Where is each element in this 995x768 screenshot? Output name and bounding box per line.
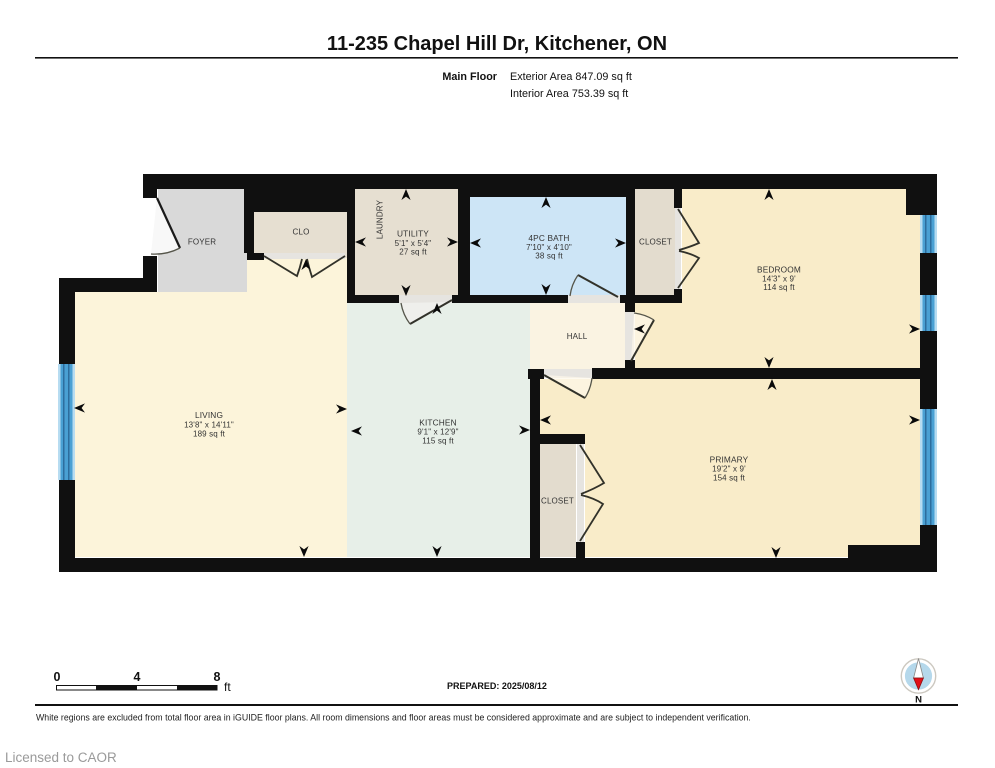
svg-text:11-235 Chapel Hill Dr, Kitchen: 11-235 Chapel Hill Dr, Kitchener, ON bbox=[327, 33, 667, 55]
svg-text:LIVING: LIVING bbox=[195, 410, 223, 420]
svg-text:CLOSET: CLOSET bbox=[541, 497, 574, 506]
svg-text:Interior Area 753.39 sq ft: Interior Area 753.39 sq ft bbox=[510, 88, 628, 100]
svg-text:0: 0 bbox=[54, 670, 61, 684]
svg-text:9'1" x 12'9": 9'1" x 12'9" bbox=[417, 428, 458, 437]
svg-text:5'1" x 5'4": 5'1" x 5'4" bbox=[395, 239, 432, 248]
svg-text:13'8" x 14'11": 13'8" x 14'11" bbox=[184, 421, 234, 430]
svg-text:HALL: HALL bbox=[567, 332, 588, 341]
svg-text:27 sq ft: 27 sq ft bbox=[399, 248, 427, 257]
svg-text:38 sq ft: 38 sq ft bbox=[535, 252, 563, 261]
svg-text:19'2" x 9': 19'2" x 9' bbox=[712, 465, 746, 474]
svg-text:ft: ft bbox=[224, 680, 231, 694]
svg-text:Exterior Area 847.09 sq ft: Exterior Area 847.09 sq ft bbox=[510, 71, 632, 83]
svg-text:LAUNDRY: LAUNDRY bbox=[376, 199, 385, 239]
svg-text:UTILITY: UTILITY bbox=[397, 229, 429, 239]
svg-text:BEDROOM: BEDROOM bbox=[757, 265, 801, 275]
svg-text:KITCHEN: KITCHEN bbox=[419, 418, 456, 428]
svg-text:Licensed to CAOR: Licensed to CAOR bbox=[5, 750, 117, 765]
svg-text:PRIMARY: PRIMARY bbox=[710, 455, 749, 465]
svg-text:N: N bbox=[915, 695, 922, 706]
svg-text:FOYER: FOYER bbox=[188, 238, 216, 247]
svg-text:115 sq ft: 115 sq ft bbox=[422, 437, 454, 446]
svg-text:PREPARED: 2025/08/12: PREPARED: 2025/08/12 bbox=[447, 681, 547, 691]
svg-text:8: 8 bbox=[214, 670, 221, 684]
svg-text:White regions are excluded fro: White regions are excluded from total fl… bbox=[36, 713, 751, 723]
svg-text:114 sq ft: 114 sq ft bbox=[763, 283, 795, 292]
svg-text:CLO: CLO bbox=[293, 228, 310, 237]
svg-text:189 sq ft: 189 sq ft bbox=[193, 430, 226, 439]
svg-text:4: 4 bbox=[134, 670, 141, 684]
svg-text:CLOSET: CLOSET bbox=[639, 238, 672, 247]
svg-text:4PC BATH: 4PC BATH bbox=[528, 233, 569, 243]
svg-text:154 sq ft: 154 sq ft bbox=[713, 474, 746, 483]
svg-text:Main Floor: Main Floor bbox=[442, 71, 497, 83]
